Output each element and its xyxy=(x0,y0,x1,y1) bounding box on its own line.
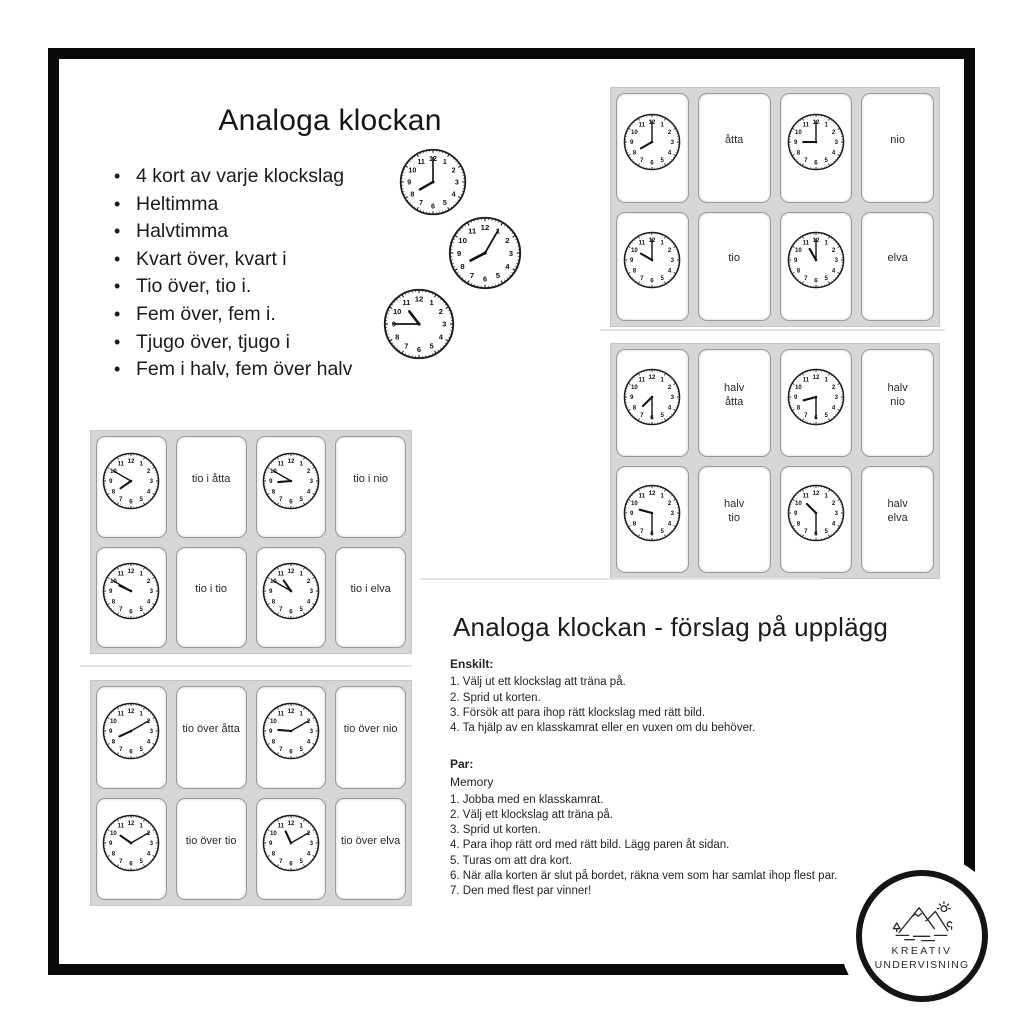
intro-bullet-list: 4 kort av varje klockslagHeltimmaHalvtim… xyxy=(112,163,352,384)
card-label: tio i tio xyxy=(195,582,227,596)
clock-card: 123456789101112 xyxy=(780,212,853,322)
svg-text:11: 11 xyxy=(417,158,425,166)
mountain-icon xyxy=(883,901,961,943)
svg-text:1: 1 xyxy=(443,158,447,166)
bullet-item: Heltimma xyxy=(112,191,352,219)
clock-card: 123456789101112 xyxy=(256,686,327,789)
svg-text:6: 6 xyxy=(417,345,421,354)
svg-text:7: 7 xyxy=(470,271,474,280)
card-cell: elva xyxy=(857,208,938,326)
clock-card: 123456789101112 xyxy=(96,436,167,538)
clock-card: 123456789101112 xyxy=(616,93,689,203)
svg-text:4: 4 xyxy=(452,190,456,198)
clock-card: 123456789101112 xyxy=(96,547,167,649)
svg-text:10: 10 xyxy=(631,129,638,136)
clock-card: 123456789101112 xyxy=(616,349,689,457)
svg-text:2: 2 xyxy=(439,307,443,316)
svg-text:11: 11 xyxy=(639,493,646,500)
svg-text:10: 10 xyxy=(795,384,802,391)
clock-card: 123456789101112 xyxy=(96,686,167,789)
svg-text:11: 11 xyxy=(639,240,646,247)
svg-text:12: 12 xyxy=(128,820,135,827)
card-cell: 123456789101112 xyxy=(612,89,693,207)
bullet-item: Kvart över, kvart i xyxy=(112,246,352,274)
card-label: halv elva xyxy=(888,497,908,525)
bullet-item: Tio över, tio i. xyxy=(112,273,352,301)
svg-text:11: 11 xyxy=(402,298,410,307)
svg-text:11: 11 xyxy=(468,226,477,235)
card-cell: 123456789101112 xyxy=(612,345,693,461)
card-sheet-ten-past: 123456789101112tio över åtta123456789101… xyxy=(90,680,412,906)
section-heading: Par: xyxy=(450,757,880,772)
clock-card: 123456789101112 xyxy=(256,798,327,901)
word-card: halv tio xyxy=(698,466,771,574)
svg-text:10: 10 xyxy=(458,236,467,245)
clock-face: 123456789101112 xyxy=(623,113,681,171)
svg-text:11: 11 xyxy=(803,493,810,500)
instruction-step: 2. Sprid ut korten. xyxy=(450,691,880,706)
word-card: tio i nio xyxy=(335,436,406,538)
svg-text:10: 10 xyxy=(631,384,638,391)
clock-face: 123456789101112 xyxy=(623,368,681,426)
section-heading: Enskilt: xyxy=(450,657,880,672)
instructions-section-par: Par: Memory 1. Jobba med en klasskamrat.… xyxy=(450,757,880,900)
card-sheet-ten-to: 123456789101112tio i åtta123456789101112… xyxy=(90,430,412,654)
instruction-step: 3. Sprid ut korten. xyxy=(450,823,880,838)
bullet-item: 4 kort av varje klockslag xyxy=(112,163,352,191)
card-cell: tio över tio xyxy=(172,794,251,905)
clock-card: 123456789101112 xyxy=(616,466,689,574)
svg-text:8: 8 xyxy=(460,262,465,271)
word-card: tio i tio xyxy=(176,547,247,649)
card-cell: 123456789101112 xyxy=(252,682,331,793)
divider-line xyxy=(420,578,820,580)
svg-text:11: 11 xyxy=(118,460,125,467)
card-cell: 123456789101112 xyxy=(92,682,171,793)
clock-card: 123456789101112 xyxy=(780,349,853,457)
word-card: tio över elva xyxy=(335,798,406,901)
clock-face: 123456789101112 xyxy=(262,702,320,760)
svg-text:10: 10 xyxy=(631,500,638,507)
instructions-section-enskilt: Enskilt: 1. Välj ut ett klockslag att tr… xyxy=(450,657,880,736)
bullet-item: Fem över, fem i. xyxy=(112,301,352,329)
card-label: tio över elva xyxy=(341,834,400,848)
instruction-step: 4. Para ihop rätt ord med rätt bild. Läg… xyxy=(450,838,880,853)
bullet-item: Halvtimma xyxy=(112,218,352,246)
word-card: tio över nio xyxy=(335,686,406,789)
svg-text:9: 9 xyxy=(457,249,462,258)
divider-line xyxy=(80,665,412,667)
svg-text:4: 4 xyxy=(505,262,510,271)
card-label: elva xyxy=(888,251,908,265)
clock-face: 123456789101112 xyxy=(623,231,681,289)
svg-text:10: 10 xyxy=(795,500,802,507)
instruction-step: 5. Turas om att dra kort. xyxy=(450,854,880,869)
card-cell: tio xyxy=(694,208,775,326)
clock-face: 123456789101112 xyxy=(787,231,845,289)
poster-page: { "intro": { "title": "Analoga klockan",… xyxy=(0,0,1024,1024)
demo-clock-1: 123456789101112 xyxy=(399,148,467,216)
clock-card: 123456789101112 xyxy=(616,212,689,322)
section-steps: 1. Jobba med en klasskamrat.2. Välj ett … xyxy=(450,793,880,900)
svg-text:5: 5 xyxy=(443,199,447,207)
card-cell: åtta xyxy=(694,89,775,207)
card-label: halv nio xyxy=(888,381,908,409)
card-cell: 123456789101112 xyxy=(612,462,693,578)
svg-text:12: 12 xyxy=(287,458,294,465)
word-card: halv åtta xyxy=(698,349,771,457)
svg-text:10: 10 xyxy=(408,167,416,175)
clock-card: 123456789101112 xyxy=(780,466,853,574)
card-cell: 123456789101112 xyxy=(612,208,693,326)
clock-face: 123456789101112 xyxy=(102,452,160,510)
card-cell: 123456789101112 xyxy=(92,432,171,542)
logo-text-line2: UNDERVISNING xyxy=(875,959,970,971)
clock-face: 123456789101112 xyxy=(399,148,467,216)
clock-face: 123456789101112 xyxy=(448,216,522,290)
clock-card: 123456789101112 xyxy=(256,547,327,649)
svg-text:11: 11 xyxy=(639,376,646,383)
svg-text:12: 12 xyxy=(287,820,294,827)
svg-text:10: 10 xyxy=(270,830,277,837)
word-card: tio över åtta xyxy=(176,686,247,789)
clock-face: 123456789101112 xyxy=(102,814,160,872)
section-steps: 1. Välj ut ett klockslag att träna på.2.… xyxy=(450,675,880,736)
card-cell: 123456789101112 xyxy=(776,462,857,578)
card-cell: halv nio xyxy=(857,345,938,461)
card-cell: tio i åtta xyxy=(172,432,251,542)
svg-text:11: 11 xyxy=(118,711,125,718)
clock-face: 123456789101112 xyxy=(262,814,320,872)
card-sheet-half-hours: 123456789101112halv åtta123456789101112h… xyxy=(610,343,940,579)
instruction-step: 3. Försök att para ihop rätt klockslag m… xyxy=(450,706,880,721)
instructions-title: Analoga klockan - förslag på upplägg xyxy=(453,612,888,643)
card-sheet-whole-hours: 123456789101112åtta123456789101112nio123… xyxy=(610,87,940,327)
clock-card: 123456789101112 xyxy=(96,798,167,901)
clock-face: 123456789101112 xyxy=(787,484,845,542)
word-card: halv elva xyxy=(861,466,934,574)
card-cell: 123456789101112 xyxy=(252,794,331,905)
instruction-step: 7. Den med flest par vinner! xyxy=(450,884,880,899)
svg-text:6: 6 xyxy=(483,275,488,284)
word-card: tio xyxy=(698,212,771,322)
instruction-step: 1. Välj ut ett klockslag att träna på. xyxy=(450,675,880,690)
card-cell: 123456789101112 xyxy=(92,543,171,653)
svg-text:12: 12 xyxy=(812,374,819,381)
card-label: halv tio xyxy=(724,497,744,525)
card-cell: tio över åtta xyxy=(172,682,251,793)
svg-text:10: 10 xyxy=(270,718,277,725)
svg-text:3: 3 xyxy=(442,320,446,329)
svg-text:11: 11 xyxy=(118,822,125,829)
svg-text:11: 11 xyxy=(803,121,810,128)
word-card: nio xyxy=(861,93,934,203)
svg-text:12: 12 xyxy=(128,708,135,715)
clock-face: 123456789101112 xyxy=(262,452,320,510)
clock-card: 123456789101112 xyxy=(256,436,327,538)
card-cell: nio xyxy=(857,89,938,207)
clock-face: 123456789101112 xyxy=(262,562,320,620)
demo-clock-2: 123456789101112 xyxy=(448,216,522,290)
card-label: tio över nio xyxy=(344,722,398,736)
svg-text:11: 11 xyxy=(278,571,285,578)
word-card: tio i åtta xyxy=(176,436,247,538)
card-cell: 123456789101112 xyxy=(776,208,857,326)
clock-face: 123456789101112 xyxy=(102,562,160,620)
svg-text:8: 8 xyxy=(395,332,399,341)
svg-text:10: 10 xyxy=(393,307,401,316)
card-cell: tio i elva xyxy=(331,543,410,653)
clock-face: 123456789101112 xyxy=(787,113,845,171)
card-label: tio i nio xyxy=(353,472,388,486)
svg-text:11: 11 xyxy=(278,711,285,718)
brand-logo: KREATIV UNDERVISNING xyxy=(856,870,988,1002)
svg-text:11: 11 xyxy=(803,240,810,247)
svg-text:12: 12 xyxy=(128,458,135,465)
svg-text:8: 8 xyxy=(410,190,414,198)
card-label: åtta xyxy=(725,133,743,147)
svg-text:11: 11 xyxy=(278,460,285,467)
card-cell: tio i nio xyxy=(331,432,410,542)
svg-text:10: 10 xyxy=(110,830,117,837)
instruction-step: 1. Jobba med en klasskamrat. xyxy=(450,793,880,808)
svg-text:11: 11 xyxy=(118,571,125,578)
logo-text-line1: KREATIV xyxy=(892,945,953,957)
svg-text:1: 1 xyxy=(429,298,433,307)
word-card: elva xyxy=(861,212,934,322)
svg-text:3: 3 xyxy=(509,249,514,258)
instruction-step: 4. Ta hjälp av en klasskamrat eller en v… xyxy=(450,721,880,736)
word-card: tio över tio xyxy=(176,798,247,901)
bullet-item: Fem i halv, fem över halv xyxy=(112,356,352,384)
svg-text:11: 11 xyxy=(639,121,646,128)
clock-face: 123456789101112 xyxy=(623,484,681,542)
svg-text:12: 12 xyxy=(287,708,294,715)
svg-text:10: 10 xyxy=(795,129,802,136)
card-cell: 123456789101112 xyxy=(252,543,331,653)
svg-text:2: 2 xyxy=(452,167,456,175)
svg-text:12: 12 xyxy=(128,568,135,575)
section-subheading: Memory xyxy=(450,775,880,790)
word-card: tio i elva xyxy=(335,547,406,649)
bullet-item: Tjugo över, tjugo i xyxy=(112,329,352,357)
clock-face: 123456789101112 xyxy=(787,368,845,426)
divider-line xyxy=(600,329,945,331)
svg-text:10: 10 xyxy=(631,247,638,254)
card-label: nio xyxy=(890,133,905,147)
svg-text:5: 5 xyxy=(496,271,501,280)
card-label: tio över tio xyxy=(186,834,237,848)
card-cell: halv åtta xyxy=(694,345,775,461)
svg-text:12: 12 xyxy=(812,490,819,497)
page-title: Analoga klockan xyxy=(115,104,545,138)
word-card: halv nio xyxy=(861,349,934,457)
svg-text:3: 3 xyxy=(455,179,459,187)
clock-face: 123456789101112 xyxy=(383,288,455,360)
card-cell: halv tio xyxy=(694,462,775,578)
card-label: tio över åtta xyxy=(182,722,239,736)
card-label: tio i elva xyxy=(350,582,390,596)
instruction-step: 6. När alla korten är slut på bordet, rä… xyxy=(450,869,880,884)
card-label: tio xyxy=(728,251,740,265)
card-label: tio i åtta xyxy=(192,472,231,486)
svg-text:9: 9 xyxy=(407,179,411,187)
svg-text:2: 2 xyxy=(505,236,510,245)
card-cell: 123456789101112 xyxy=(776,89,857,207)
card-cell: tio i tio xyxy=(172,543,251,653)
svg-text:10: 10 xyxy=(795,247,802,254)
svg-text:12: 12 xyxy=(287,568,294,575)
svg-text:5: 5 xyxy=(429,342,433,351)
card-cell: 123456789101112 xyxy=(252,432,331,542)
card-cell: halv elva xyxy=(857,462,938,578)
demo-clock-3: 123456789101112 xyxy=(383,288,455,360)
word-card: åtta xyxy=(698,93,771,203)
instruction-step: 2. Välj ett klockslag att träna på. xyxy=(450,808,880,823)
svg-text:12: 12 xyxy=(481,223,490,232)
svg-text:12: 12 xyxy=(415,295,423,304)
card-cell: tio över elva xyxy=(331,794,410,905)
card-cell: 123456789101112 xyxy=(92,794,171,905)
clock-card: 123456789101112 xyxy=(780,93,853,203)
svg-text:10: 10 xyxy=(110,718,117,725)
svg-text:11: 11 xyxy=(803,376,810,383)
card-label: halv åtta xyxy=(724,381,744,409)
svg-text:7: 7 xyxy=(404,342,408,351)
svg-text:12: 12 xyxy=(649,490,656,497)
card-cell: tio över nio xyxy=(331,682,410,793)
clock-face: 123456789101112 xyxy=(102,702,160,760)
svg-text:11: 11 xyxy=(278,822,285,829)
svg-text:7: 7 xyxy=(419,199,423,207)
card-cell: 123456789101112 xyxy=(776,345,857,461)
svg-text:6: 6 xyxy=(431,202,435,210)
svg-text:12: 12 xyxy=(649,374,656,381)
